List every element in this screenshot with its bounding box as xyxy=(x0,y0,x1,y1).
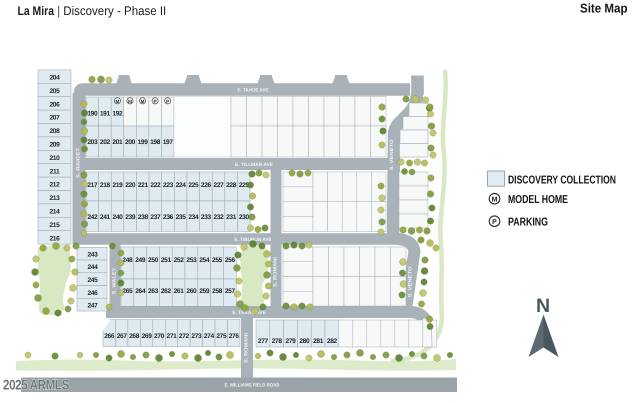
svg-text:250: 250 xyxy=(148,257,159,264)
svg-text:232: 232 xyxy=(214,214,225,221)
svg-text:281: 281 xyxy=(313,338,324,345)
svg-text:S. ROMANI: S. ROMANI xyxy=(273,257,278,287)
svg-text:P: P xyxy=(154,99,157,104)
svg-text:198: 198 xyxy=(150,139,161,146)
svg-text:234: 234 xyxy=(188,214,199,221)
svg-text:S. RAIGET: S. RAIGET xyxy=(76,148,81,178)
svg-text:238: 238 xyxy=(138,214,149,221)
svg-text:259: 259 xyxy=(199,288,210,295)
svg-text:278: 278 xyxy=(272,338,283,345)
svg-text:203: 203 xyxy=(87,139,98,146)
svg-text:S. WALEY: S. WALEY xyxy=(112,266,117,294)
svg-text:258: 258 xyxy=(212,288,223,295)
svg-text:M: M xyxy=(492,196,498,203)
svg-text:242: 242 xyxy=(87,214,98,221)
svg-text:233: 233 xyxy=(201,214,212,221)
svg-text:M: M xyxy=(128,99,132,104)
svg-text:256: 256 xyxy=(225,257,236,264)
svg-text:274: 274 xyxy=(204,333,215,340)
svg-text:224: 224 xyxy=(176,182,187,189)
svg-text:273: 273 xyxy=(191,333,202,340)
svg-text:239: 239 xyxy=(125,214,136,221)
svg-text:280: 280 xyxy=(299,338,310,345)
svg-text:253: 253 xyxy=(186,257,197,264)
svg-text:276: 276 xyxy=(229,333,240,340)
svg-text:223: 223 xyxy=(163,182,174,189)
svg-text:272: 272 xyxy=(179,333,190,340)
svg-text:222: 222 xyxy=(150,182,161,189)
svg-text:205: 205 xyxy=(49,88,60,95)
svg-text:225: 225 xyxy=(188,182,199,189)
svg-text:246: 246 xyxy=(87,290,98,297)
svg-text:191: 191 xyxy=(100,111,111,118)
svg-text:201: 201 xyxy=(112,139,123,146)
svg-text:E. TAHOE AVE: E. TAHOE AVE xyxy=(238,87,269,92)
svg-text:269: 269 xyxy=(142,333,153,340)
svg-text:221: 221 xyxy=(138,182,149,189)
svg-text:270: 270 xyxy=(154,333,165,340)
svg-text:209: 209 xyxy=(49,142,60,149)
svg-text:245: 245 xyxy=(87,277,98,284)
svg-text:210: 210 xyxy=(49,155,60,162)
svg-text:227: 227 xyxy=(214,182,225,189)
svg-text:211: 211 xyxy=(50,168,60,175)
svg-text:265: 265 xyxy=(122,288,133,295)
svg-text:214: 214 xyxy=(49,209,60,216)
svg-text:E. TILLMAN AVE: E. TILLMAN AVE xyxy=(235,162,273,167)
svg-text:190: 190 xyxy=(87,111,98,118)
svg-text:275: 275 xyxy=(216,333,227,340)
svg-text:212: 212 xyxy=(49,182,60,189)
svg-text:240: 240 xyxy=(113,214,124,221)
svg-text:220: 220 xyxy=(125,182,136,189)
svg-text:241: 241 xyxy=(100,214,111,221)
svg-text:235: 235 xyxy=(176,214,187,221)
svg-text:226: 226 xyxy=(201,182,212,189)
svg-text:215: 215 xyxy=(49,222,60,229)
svg-text:E. WILLIAMS FIELD ROAD: E. WILLIAMS FIELD ROAD xyxy=(225,383,281,388)
svg-text:277: 277 xyxy=(258,338,269,345)
svg-text:199: 199 xyxy=(138,139,149,146)
svg-text:264: 264 xyxy=(135,288,146,295)
svg-text:247: 247 xyxy=(87,303,98,310)
svg-text:S. VENETO: S. VENETO xyxy=(408,266,413,297)
svg-text:197: 197 xyxy=(163,139,174,146)
svg-text:231: 231 xyxy=(226,214,237,221)
svg-text:PARKING: PARKING xyxy=(508,216,548,228)
svg-text:254: 254 xyxy=(199,257,210,264)
svg-text:La Mira|Discovery - Phase II: La Mira|Discovery - Phase II xyxy=(18,4,167,18)
svg-text:217: 217 xyxy=(87,182,98,189)
svg-text:244: 244 xyxy=(87,264,98,271)
svg-text:251: 251 xyxy=(161,257,172,264)
svg-text:282: 282 xyxy=(327,338,338,345)
svg-text:200: 200 xyxy=(125,139,136,146)
svg-text:213: 213 xyxy=(49,195,60,202)
svg-text:219: 219 xyxy=(113,182,124,189)
svg-text:257: 257 xyxy=(225,288,236,295)
svg-text:261: 261 xyxy=(174,288,185,295)
svg-text:S. ROMANI: S. ROMANI xyxy=(244,333,249,363)
svg-text:P: P xyxy=(166,99,169,104)
svg-text:243: 243 xyxy=(87,252,98,259)
svg-text:255: 255 xyxy=(212,257,223,264)
svg-text:216: 216 xyxy=(49,235,60,242)
svg-text:2025 ARMLS: 2025 ARMLS xyxy=(3,377,69,393)
svg-text:202: 202 xyxy=(100,139,111,146)
svg-text:MODEL HOME: MODEL HOME xyxy=(508,194,568,206)
svg-text:M: M xyxy=(115,99,119,104)
svg-text:192: 192 xyxy=(112,111,123,118)
svg-text:M: M xyxy=(141,99,145,104)
svg-text:279: 279 xyxy=(286,338,297,345)
svg-text:271: 271 xyxy=(167,333,178,340)
svg-text:N: N xyxy=(536,295,550,317)
svg-text:236: 236 xyxy=(163,214,174,221)
svg-text:DISCOVERY COLLECTION: DISCOVERY COLLECTION xyxy=(508,175,616,187)
svg-text:207: 207 xyxy=(49,115,60,122)
svg-text:Site Map: Site Map xyxy=(580,0,628,15)
svg-text:263: 263 xyxy=(148,288,159,295)
svg-text:260: 260 xyxy=(186,288,197,295)
svg-text:230: 230 xyxy=(239,214,250,221)
svg-text:S. TEXAS AVE: S. TEXAS AVE xyxy=(232,310,266,315)
svg-text:268: 268 xyxy=(129,333,140,340)
svg-text:267: 267 xyxy=(117,333,128,340)
svg-text:237: 237 xyxy=(150,214,161,221)
svg-text:218: 218 xyxy=(100,182,111,189)
svg-text:262: 262 xyxy=(161,288,172,295)
svg-text:228: 228 xyxy=(226,182,237,189)
svg-text:P: P xyxy=(492,219,497,226)
svg-text:S. VENETO: S. VENETO xyxy=(389,139,394,170)
svg-text:249: 249 xyxy=(135,257,146,264)
svg-text:208: 208 xyxy=(49,128,60,135)
svg-text:206: 206 xyxy=(49,101,60,108)
svg-text:252: 252 xyxy=(174,257,185,264)
svg-text:204: 204 xyxy=(49,75,60,82)
svg-text:266: 266 xyxy=(104,333,115,340)
